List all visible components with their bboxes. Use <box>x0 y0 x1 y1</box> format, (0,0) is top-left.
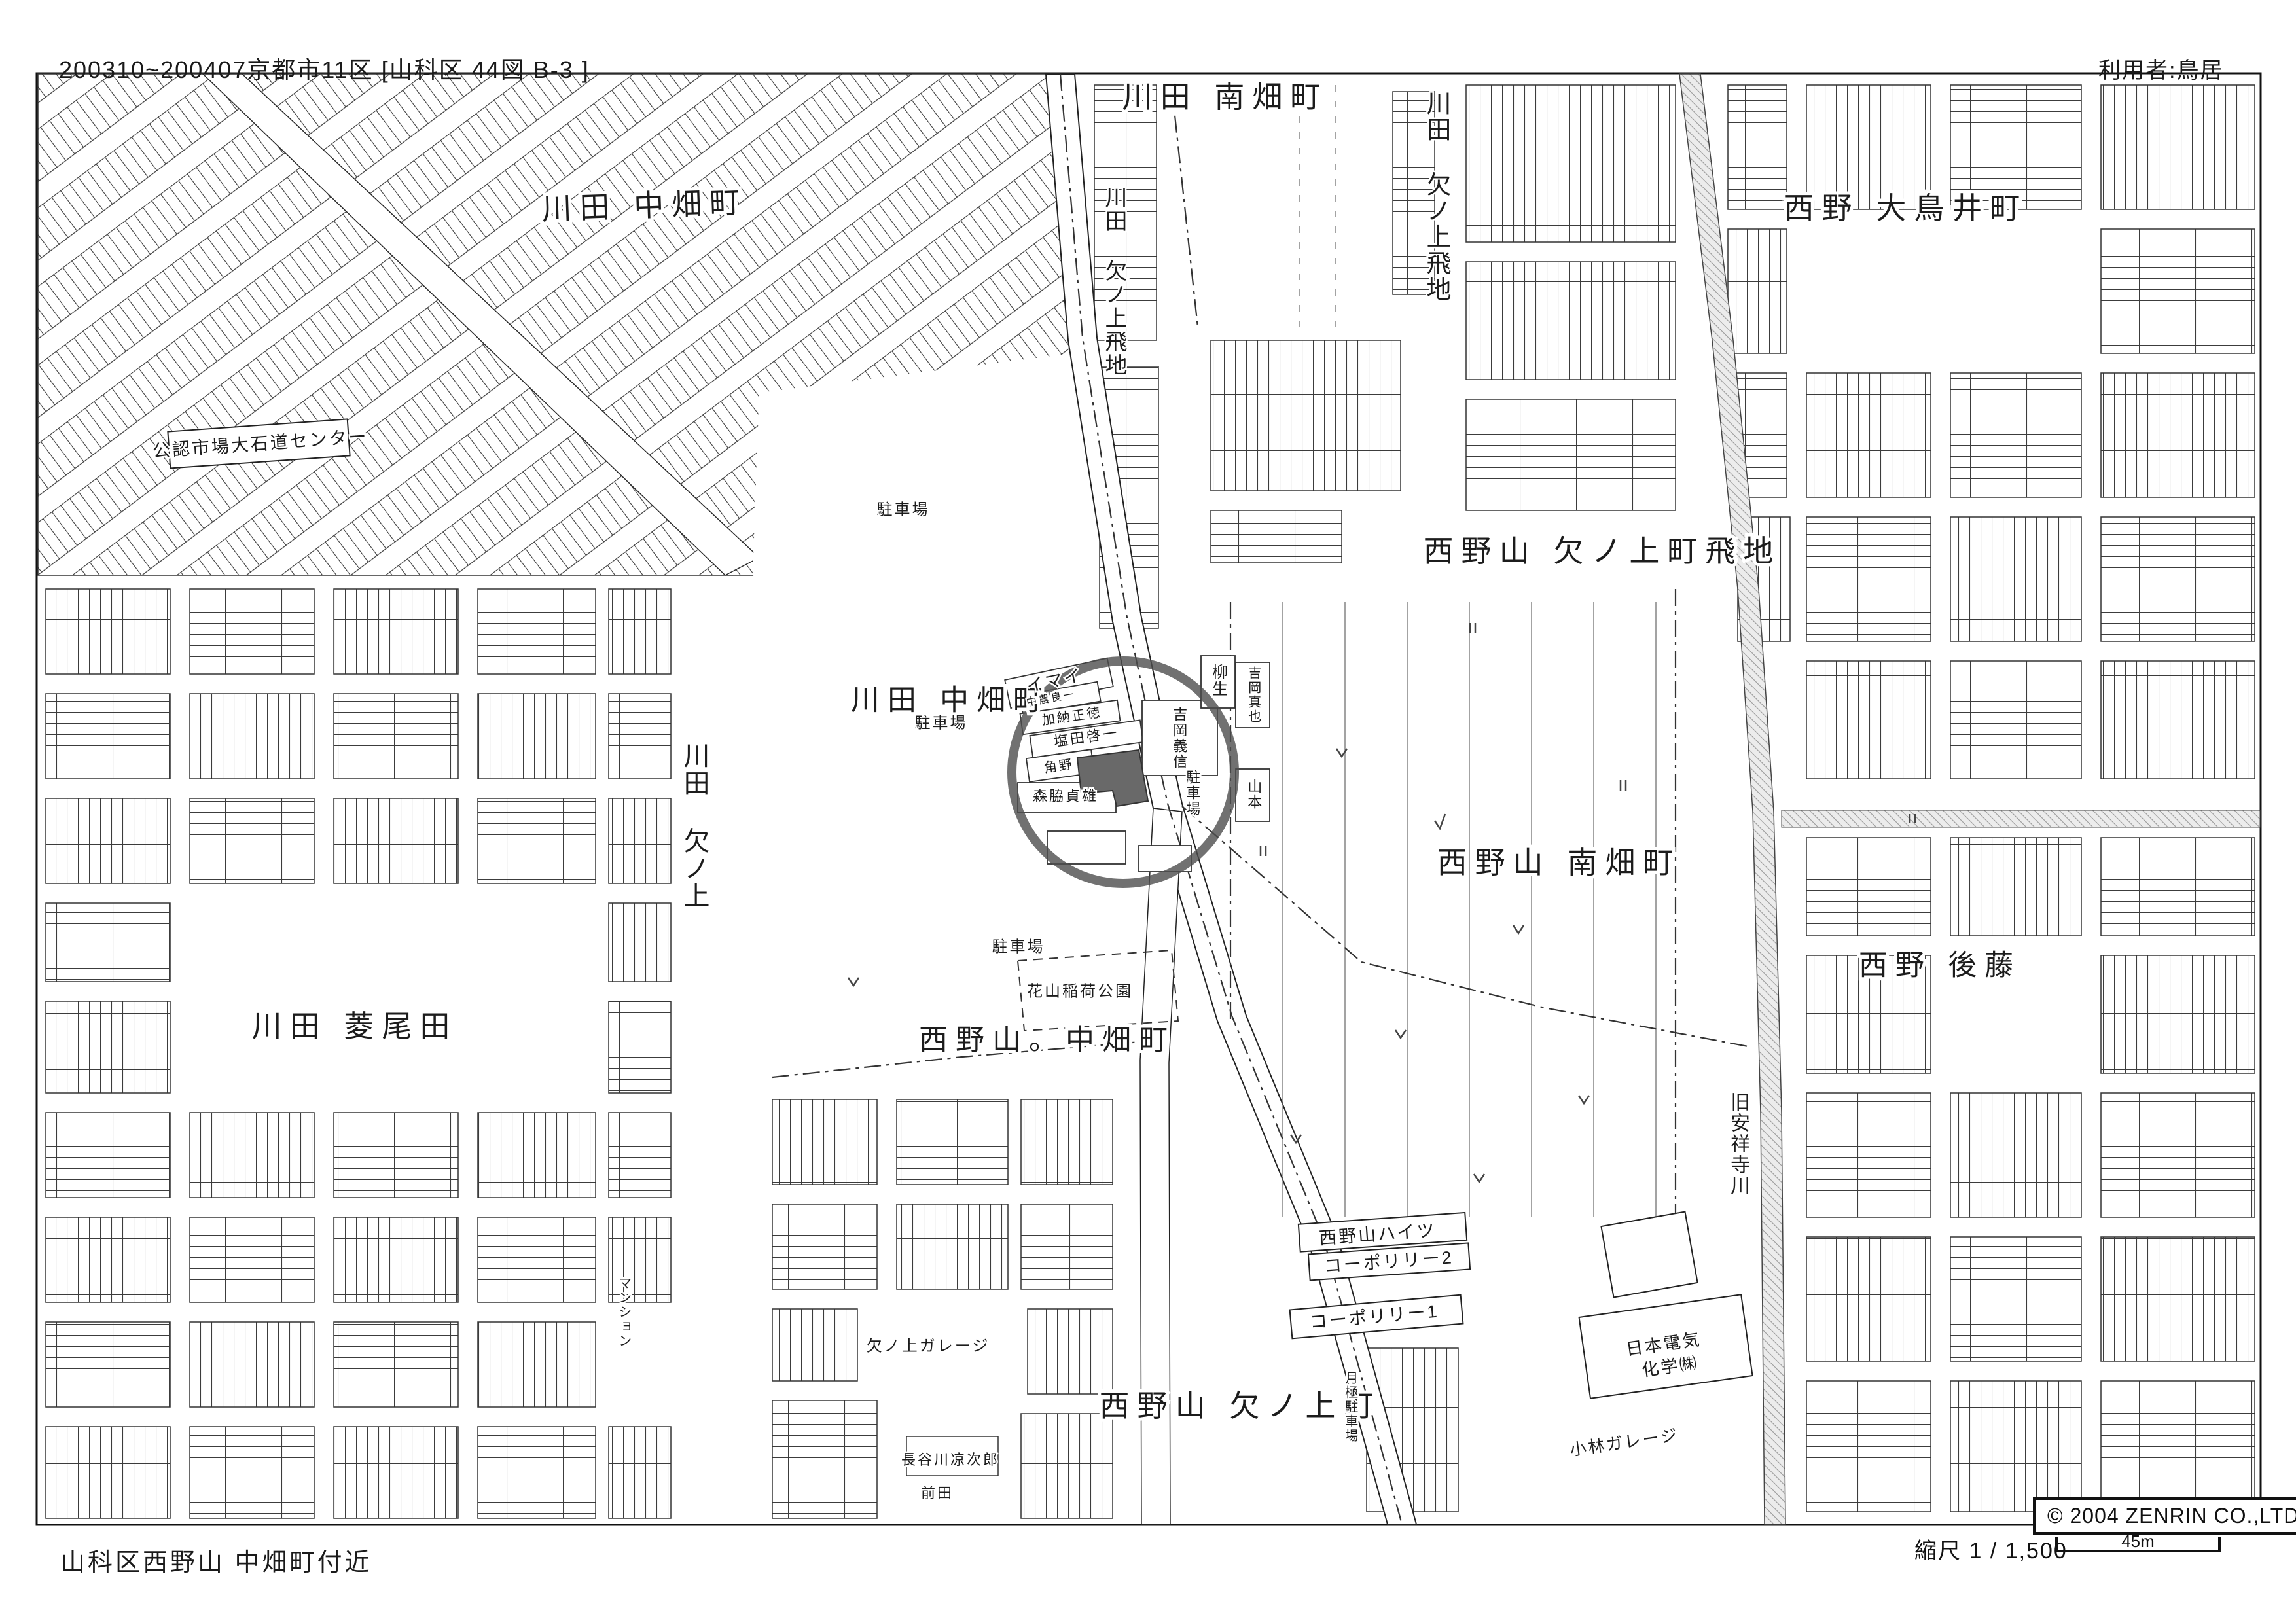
map-canvas: 川田 中畑町川田 南畑町西野 大鳥井町西野山 欠ノ上町飛地川田 中畑町西野山 南… <box>0 0 2296 1623</box>
map-label: 駐車場 <box>1184 770 1200 817</box>
copyright-badge: © 2004 ZENRIN CO.,LTD. <box>2033 1497 2296 1535</box>
map-label: 川田 菱尾田 <box>252 1009 458 1043</box>
map-label: 吉岡真也 <box>1246 666 1261 724</box>
map-label: 西野 後藤 <box>1859 950 2021 982</box>
header-sheet-title: 200310~200407京都市11区 [山科区 44図 B-3 ] <box>59 51 590 85</box>
map-label: 西野山 欠ノ上町 <box>1100 1389 1382 1423</box>
map-label: 川田 中畑町 <box>851 685 1050 717</box>
map-label: 旧安祥寺川 <box>1727 1092 1750 1196</box>
stream <box>1782 810 2260 827</box>
scale-bar: 45m <box>2055 1537 2221 1552</box>
scale-label: 縮尺 1 / 1,500 <box>1914 1533 2068 1565</box>
map-label: 西野 大鳥井町 <box>1784 191 2028 225</box>
map-label: 山本 <box>1246 779 1262 810</box>
map-label: 長谷川凉次郎 <box>901 1452 999 1468</box>
map-label: 西野山 南畑町 <box>1437 846 1681 880</box>
map-label: 川田 南畑町 <box>1122 80 1329 114</box>
map-label: 川田 欠ノ上飛地 <box>1422 90 1450 302</box>
map-label: 西野山 欠ノ上町飛地 <box>1424 534 1782 568</box>
map-label: 柳生 <box>1210 664 1228 698</box>
map-label: 駐車場 <box>992 938 1045 955</box>
scale-distance: 45m <box>2121 1531 2155 1551</box>
map-label: 駐車場 <box>915 714 968 732</box>
map-label: マンション <box>617 1276 631 1348</box>
footer-area-title: 山科区西野山 中畑町付近 <box>60 1542 372 1578</box>
map-label: 駐車場 <box>877 501 930 518</box>
map-label: 川田 欠ノ上 <box>679 742 709 910</box>
tilted-block-area <box>38 74 1073 575</box>
map-label: 前田 <box>921 1485 954 1501</box>
map-label: 月極駐車場 <box>1343 1371 1358 1443</box>
map-label: 西野山。中畑町 <box>919 1024 1175 1056</box>
zenrin-map-page: { "header": { "left": "200310~200407京都市1… <box>0 0 2296 1623</box>
map-label: 花山稲荷公園 <box>1027 982 1133 1000</box>
header-user: 利用者:鳥居 <box>2098 52 2223 84</box>
map-label: 吉岡義信 <box>1171 707 1187 770</box>
map-label: 川田 欠ノ上飛地 <box>1102 186 1127 377</box>
map-label: 欠ノ上ガレージ <box>867 1337 990 1355</box>
map-label: 川田 中畑町 <box>541 185 748 226</box>
map-label: 森脇貞雄 <box>1033 788 1098 804</box>
